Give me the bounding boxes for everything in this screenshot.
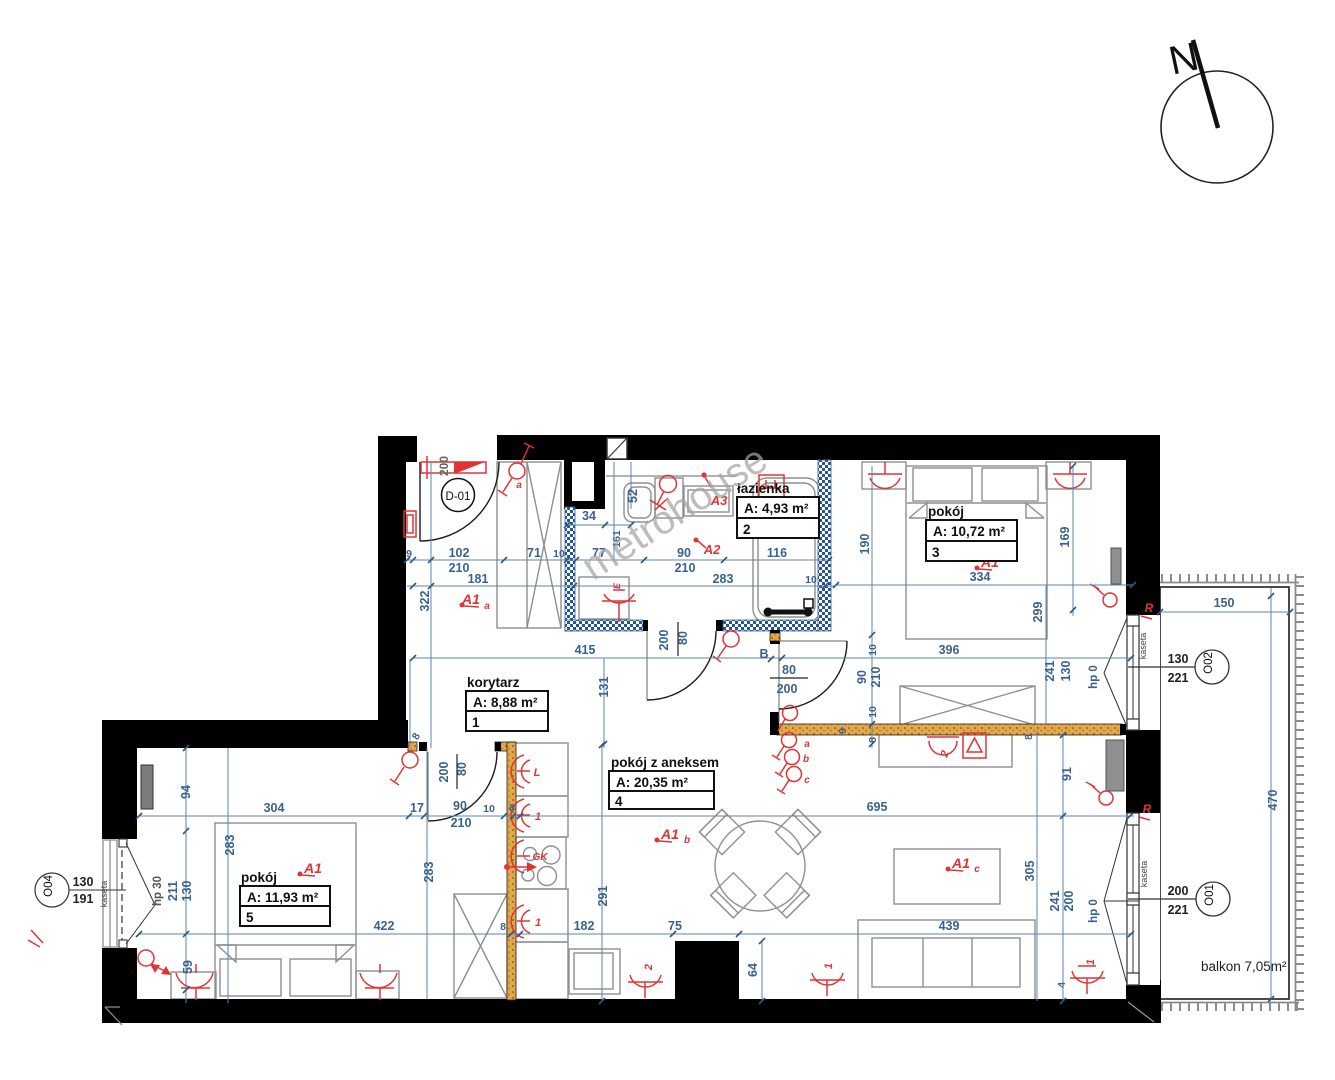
svg-text:O01: O01 bbox=[1204, 884, 1216, 906]
svg-text:korytarz: korytarz bbox=[467, 675, 520, 690]
svg-text:470: 470 bbox=[1266, 790, 1280, 811]
svg-text:1: 1 bbox=[823, 963, 835, 969]
svg-text:304: 304 bbox=[264, 801, 285, 815]
svg-text:396: 396 bbox=[939, 643, 960, 657]
svg-text:4: 4 bbox=[1056, 982, 1068, 988]
svg-text:L: L bbox=[534, 767, 541, 779]
svg-text:91: 91 bbox=[1060, 767, 1074, 781]
svg-text:221: 221 bbox=[1168, 671, 1189, 685]
svg-text:131: 131 bbox=[597, 677, 611, 698]
svg-text:182: 182 bbox=[574, 919, 595, 933]
svg-text:422: 422 bbox=[374, 919, 395, 933]
svg-text:283: 283 bbox=[223, 835, 237, 856]
svg-text:a: a bbox=[516, 480, 522, 491]
svg-text:283: 283 bbox=[422, 862, 436, 883]
svg-text:A: 10,72 m²: A: 10,72 m² bbox=[933, 524, 1006, 539]
svg-text:80: 80 bbox=[782, 663, 796, 677]
svg-text:pokój z aneksem: pokój z aneksem bbox=[611, 755, 719, 770]
svg-text:balkon 7,05m²: balkon 7,05m² bbox=[1201, 959, 1287, 974]
svg-text:299: 299 bbox=[1031, 602, 1045, 623]
svg-text:A1: A1 bbox=[660, 826, 679, 842]
svg-text:8: 8 bbox=[509, 802, 515, 814]
svg-text:283: 283 bbox=[713, 572, 734, 586]
svg-text:kaseta: kaseta bbox=[99, 881, 109, 908]
svg-text:2: 2 bbox=[743, 522, 751, 537]
svg-text:200: 200 bbox=[657, 630, 671, 651]
svg-text:1: 1 bbox=[535, 917, 541, 929]
svg-text:130: 130 bbox=[1059, 661, 1073, 682]
svg-text:695: 695 bbox=[867, 800, 888, 814]
svg-text:130: 130 bbox=[1168, 652, 1189, 666]
svg-text:A2: A2 bbox=[703, 542, 721, 557]
svg-text:10: 10 bbox=[867, 706, 879, 718]
svg-text:334: 334 bbox=[970, 570, 991, 584]
svg-text:pokój: pokój bbox=[241, 870, 277, 885]
svg-text:kaseta: kaseta bbox=[1138, 633, 1148, 660]
svg-text:322: 322 bbox=[418, 591, 432, 612]
svg-text:210: 210 bbox=[869, 667, 883, 688]
svg-text:9: 9 bbox=[837, 728, 849, 734]
svg-text:B: B bbox=[759, 647, 768, 661]
svg-text:221: 221 bbox=[1168, 903, 1189, 917]
svg-text:90: 90 bbox=[855, 670, 869, 684]
svg-text:4: 4 bbox=[615, 794, 623, 809]
svg-text:130: 130 bbox=[73, 875, 94, 889]
svg-text:A1: A1 bbox=[951, 855, 970, 871]
svg-text:8: 8 bbox=[500, 921, 506, 933]
svg-text:c: c bbox=[974, 864, 980, 875]
svg-text:210: 210 bbox=[675, 561, 696, 575]
svg-text:10: 10 bbox=[483, 803, 495, 815]
svg-text:10: 10 bbox=[553, 548, 565, 560]
svg-text:130: 130 bbox=[180, 881, 194, 902]
svg-text:3: 3 bbox=[932, 545, 940, 560]
svg-text:200: 200 bbox=[1168, 884, 1189, 898]
svg-text:D-01: D-01 bbox=[446, 491, 471, 503]
svg-text:8: 8 bbox=[867, 737, 879, 743]
svg-text:34: 34 bbox=[582, 509, 596, 523]
svg-text:10: 10 bbox=[867, 644, 879, 656]
svg-text:A: 20,35 m²: A: 20,35 m² bbox=[616, 775, 689, 790]
svg-text:90: 90 bbox=[677, 546, 691, 560]
svg-text:241: 241 bbox=[1043, 661, 1057, 682]
svg-text:17: 17 bbox=[410, 801, 424, 815]
svg-text:169: 169 bbox=[1058, 527, 1072, 548]
svg-text:a: a bbox=[484, 601, 490, 612]
svg-text:210: 210 bbox=[449, 561, 470, 575]
svg-text:200: 200 bbox=[437, 456, 451, 476]
svg-text:200: 200 bbox=[437, 762, 451, 783]
svg-text:1: 1 bbox=[1085, 959, 1097, 965]
svg-text:52: 52 bbox=[626, 489, 640, 503]
svg-text:A: 8,88 m²: A: 8,88 m² bbox=[473, 695, 538, 710]
svg-text:415: 415 bbox=[575, 643, 596, 657]
svg-text:kaseta: kaseta bbox=[1139, 861, 1149, 888]
svg-text:241: 241 bbox=[1048, 891, 1062, 912]
svg-text:hp 0: hp 0 bbox=[1088, 899, 1100, 923]
svg-text:200: 200 bbox=[777, 682, 798, 696]
svg-text:A: 11,93 m²: A: 11,93 m² bbox=[247, 890, 319, 905]
svg-text:GK: GK bbox=[533, 852, 549, 863]
svg-text:71: 71 bbox=[527, 546, 541, 560]
svg-text:190: 190 bbox=[858, 534, 872, 555]
svg-text:1: 1 bbox=[472, 715, 480, 730]
svg-text:200: 200 bbox=[1062, 891, 1076, 912]
svg-text:291: 291 bbox=[596, 886, 610, 907]
svg-text:439: 439 bbox=[939, 919, 960, 933]
svg-text:59: 59 bbox=[181, 960, 195, 974]
svg-text:b: b bbox=[803, 754, 809, 765]
svg-text:O02: O02 bbox=[1203, 652, 1215, 674]
svg-text:hp 30: hp 30 bbox=[152, 876, 164, 906]
svg-text:b: b bbox=[684, 835, 690, 846]
svg-text:pokój: pokój bbox=[928, 504, 964, 519]
svg-text:R: R bbox=[1143, 802, 1152, 816]
svg-text:5: 5 bbox=[246, 910, 254, 925]
svg-text:R: R bbox=[1145, 601, 1154, 615]
svg-text:191: 191 bbox=[73, 892, 94, 906]
svg-text:c: c bbox=[804, 775, 810, 786]
svg-text:75: 75 bbox=[668, 919, 682, 933]
svg-text:2: 2 bbox=[643, 964, 655, 971]
svg-text:64: 64 bbox=[746, 963, 760, 977]
svg-text:181: 181 bbox=[468, 572, 489, 586]
svg-text:9: 9 bbox=[406, 548, 412, 560]
svg-text:210: 210 bbox=[451, 816, 472, 830]
svg-text:a: a bbox=[804, 739, 810, 750]
svg-text:102: 102 bbox=[449, 546, 470, 560]
svg-text:hp 0: hp 0 bbox=[1088, 665, 1100, 689]
svg-text:116: 116 bbox=[767, 546, 787, 560]
svg-text:305: 305 bbox=[1023, 861, 1037, 882]
svg-text:8: 8 bbox=[1023, 734, 1035, 740]
svg-text:211: 211 bbox=[166, 881, 180, 901]
svg-text:1: 1 bbox=[535, 811, 541, 823]
svg-text:O04: O04 bbox=[43, 875, 55, 897]
svg-text:A1: A1 bbox=[303, 860, 322, 876]
svg-text:90: 90 bbox=[453, 799, 467, 813]
svg-text:150: 150 bbox=[1214, 596, 1235, 610]
svg-text:94: 94 bbox=[179, 785, 193, 799]
svg-text:10: 10 bbox=[805, 574, 817, 586]
svg-text:A: 4,93 m²: A: 4,93 m² bbox=[744, 501, 809, 516]
